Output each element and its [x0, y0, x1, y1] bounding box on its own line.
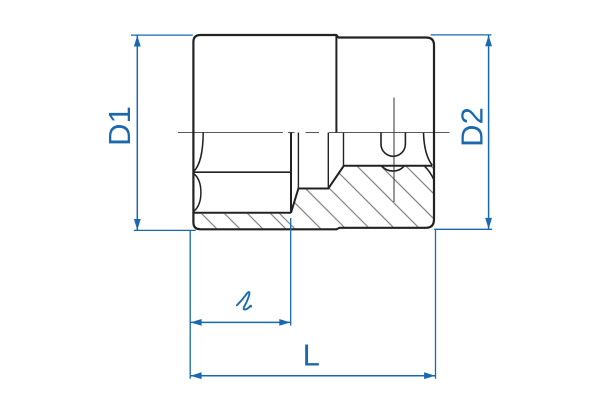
svg-text:D2: D2	[454, 107, 489, 147]
svg-text:D1: D1	[102, 106, 137, 146]
svg-text:L: L	[303, 338, 320, 373]
